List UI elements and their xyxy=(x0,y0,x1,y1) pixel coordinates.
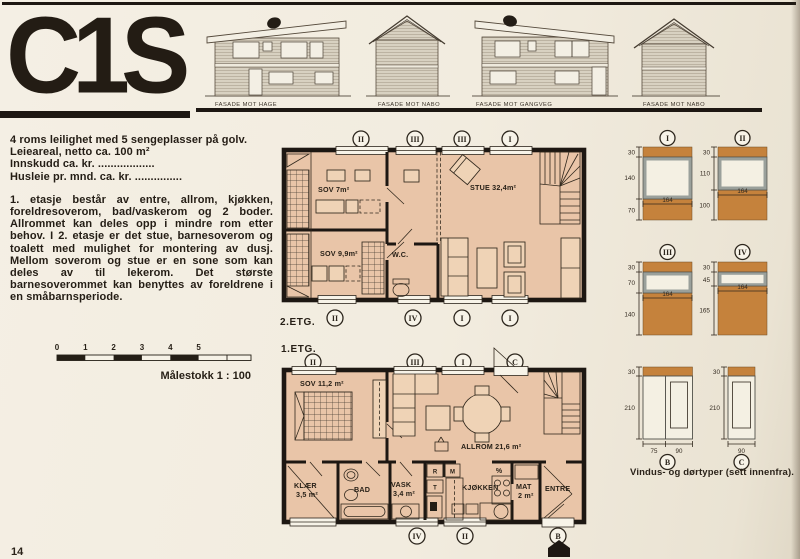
window xyxy=(315,72,333,84)
door-type-B: 30 210 75 90 B xyxy=(624,367,692,470)
plan-window xyxy=(444,296,482,304)
floor-band xyxy=(642,67,706,70)
scale-tick: 3 xyxy=(140,343,145,352)
dim-label: 110 xyxy=(700,171,711,178)
room-label: MAT xyxy=(516,482,532,491)
svg-text:B: B xyxy=(555,532,561,541)
door-type-C: 30 210 90 C xyxy=(709,367,755,470)
closet-label: R xyxy=(433,470,438,476)
scale-tick: 4 xyxy=(168,343,173,352)
svg-text:IV: IV xyxy=(409,314,418,323)
dim-label: 70 xyxy=(628,280,636,287)
room-label: KJØKKEN xyxy=(462,483,499,492)
appliance-door xyxy=(430,502,437,511)
dim-label: 30 xyxy=(703,265,711,272)
dim-label: 100 xyxy=(699,203,710,210)
dim-label: 164 xyxy=(737,188,748,195)
window xyxy=(233,42,259,58)
plan-window xyxy=(490,147,532,155)
dim-label: 30 xyxy=(703,150,711,157)
dim-label: 210 xyxy=(709,405,720,412)
opening-marker: III xyxy=(660,245,675,260)
window xyxy=(310,42,323,58)
scale-tick: 5 xyxy=(196,343,201,352)
coffee-table xyxy=(477,248,497,288)
floor-label: 2.ETG. xyxy=(280,317,315,328)
logo-underline xyxy=(0,111,190,118)
plan-window xyxy=(290,518,336,526)
scale-segment xyxy=(114,355,142,361)
plan-window xyxy=(442,367,484,375)
svg-text:III: III xyxy=(663,248,672,257)
plan-window xyxy=(396,147,436,155)
plan-marker: I xyxy=(454,310,470,326)
facade-hage-drawing: FASADE MOT HAGE xyxy=(203,6,353,109)
dim-label: 90 xyxy=(676,448,683,455)
svg-text:III: III xyxy=(457,135,466,144)
entrance-house-icon xyxy=(548,540,570,557)
facade-nabo-drawing: FASADE MOT NABO xyxy=(366,6,452,109)
window xyxy=(281,42,307,58)
dim-label: 45 xyxy=(703,277,711,284)
room-label: SOV 11,2 m² xyxy=(300,379,344,388)
chair xyxy=(475,433,489,442)
closet-hatched xyxy=(287,170,309,228)
dim-label: 30 xyxy=(628,369,636,376)
facade-label: FASADE MOT NABO xyxy=(378,102,440,108)
furniture-shelf xyxy=(355,170,370,181)
room-area: 3,4 m² xyxy=(393,489,415,498)
plan-marker: II xyxy=(327,310,343,326)
chair xyxy=(475,386,489,395)
window-type-II: II 30 110 100 164 xyxy=(699,131,767,221)
gable xyxy=(642,24,706,44)
dim-label: 164 xyxy=(662,197,673,204)
scanned-brochure-page: C1S FASADE MOT HAGE FASADE MOT NABO xyxy=(0,0,800,559)
room-label: STUE 32,4m² xyxy=(470,183,517,192)
scale-tick: 2 xyxy=(111,343,116,352)
window-type-IV: IV 30 45 165 164 xyxy=(699,245,767,336)
intro-line: Leieareal, netto ca. 100 m² xyxy=(10,146,273,158)
plan-marker: IV xyxy=(405,310,421,326)
room-label: VASK xyxy=(391,480,412,489)
plan-window xyxy=(292,367,336,375)
plan-marker: II xyxy=(457,528,473,544)
dim-label: 75 xyxy=(651,448,658,455)
bed xyxy=(329,266,344,281)
facade-label: FASADE MOT NABO xyxy=(643,102,705,108)
intro-line: Innskudd ca. kr. .................. xyxy=(10,158,273,170)
svg-text:I: I xyxy=(508,135,511,144)
svg-text:C: C xyxy=(739,458,745,467)
plan-window xyxy=(318,296,356,304)
closet-label: T xyxy=(433,486,437,492)
floor-band xyxy=(376,65,438,68)
scale-bar-outline xyxy=(57,355,251,361)
page-number: 14 xyxy=(11,546,23,558)
plan-marker: IV xyxy=(409,528,425,544)
dim-label: 140 xyxy=(624,312,635,319)
facade-nabo2-drawing: FASADE MOT NABO xyxy=(630,6,722,109)
floor-label: 1.ETG. xyxy=(281,344,316,355)
plan-marker: I xyxy=(502,131,518,147)
room-label: BAD xyxy=(354,485,370,494)
window-type-III: III 30 70 140 164 xyxy=(624,245,692,336)
dim-label: 30 xyxy=(628,150,636,157)
window xyxy=(263,42,272,51)
svg-text:I: I xyxy=(666,134,669,143)
floorplan-2etg: II III III I SOV 7m² xyxy=(278,126,600,338)
sofa xyxy=(441,238,468,296)
window xyxy=(555,71,579,84)
opening-marker: IV xyxy=(735,245,750,260)
opening-marker: II xyxy=(735,131,750,146)
floor-band xyxy=(482,64,608,68)
chair xyxy=(454,407,463,421)
gable xyxy=(376,21,438,40)
room-label: W.C. xyxy=(392,250,408,259)
description-paragraph: 1. etasje består av entre, allrom, kjøkk… xyxy=(10,194,273,304)
window xyxy=(490,71,516,84)
plan-window xyxy=(394,367,436,375)
double-bed xyxy=(304,392,352,440)
dim-label: 30 xyxy=(628,265,636,272)
dim-label: 30 xyxy=(713,369,721,376)
window-door-caption: Vindus- og dørtyper (sett innenfra). xyxy=(630,467,798,478)
house-type-logo: C1S xyxy=(6,2,181,110)
plan-window xyxy=(336,147,388,155)
scale-bar: 0 1 2 3 4 5 Målestokk 1 : 100 xyxy=(48,338,263,386)
svg-text:II: II xyxy=(358,135,364,144)
dining-table xyxy=(462,394,502,434)
furniture-shelf xyxy=(327,170,345,181)
svg-text:IV: IV xyxy=(738,248,747,257)
intro-line: 4 roms leilighet med 5 sengeplasser på g… xyxy=(10,134,273,146)
wardrobe-hatched xyxy=(362,242,384,294)
window-door-types-panel: I 30 140 70 164 II 30 110 100 164 xyxy=(622,128,800,473)
window xyxy=(495,41,520,57)
svg-text:II: II xyxy=(739,134,745,143)
facade-label: FASADE MOT GANGVEG xyxy=(476,102,552,108)
svg-text:III: III xyxy=(410,135,419,144)
floorplan-1etg: 1.ETG. II III I C xyxy=(278,336,600,559)
dim-label: 165 xyxy=(699,308,710,315)
plan-marker: III xyxy=(454,131,470,147)
dim-label: 70 xyxy=(628,208,636,215)
facade-gangveg-drawing: FASADE MOT GANGVEG xyxy=(470,6,620,109)
room-area: 2 m² xyxy=(518,491,534,500)
closet-label: M xyxy=(450,470,455,476)
dim-label: 164 xyxy=(662,291,673,298)
svg-text:III: III xyxy=(410,358,419,367)
chair xyxy=(501,407,510,421)
room-label: SOV 9,9m² xyxy=(320,249,358,258)
room-label: SOV 7m² xyxy=(318,185,350,194)
entry-door xyxy=(592,67,606,95)
description-block: 4 roms leilighet med 5 sengeplasser på g… xyxy=(10,134,273,314)
svg-text:II: II xyxy=(332,314,338,323)
svg-text:B: B xyxy=(665,458,671,467)
side-table xyxy=(426,406,450,430)
scale-segment xyxy=(170,355,198,361)
window xyxy=(269,72,293,84)
plan-window xyxy=(442,147,484,155)
svg-text:II: II xyxy=(462,532,468,541)
plan-marker: III xyxy=(407,131,423,147)
furniture-shelf xyxy=(404,170,419,182)
scale-caption: Målestokk 1 : 100 xyxy=(161,370,252,382)
dim-label: 210 xyxy=(624,405,635,412)
facade-label: FASADE MOT HAGE xyxy=(215,102,277,108)
svg-text:I: I xyxy=(508,314,511,323)
intro-line: Husleie pr. mnd. ca. kr. ............... xyxy=(10,171,273,183)
dim-label: 140 xyxy=(624,175,635,182)
floor-band xyxy=(215,64,339,68)
window xyxy=(528,41,536,51)
bed xyxy=(312,266,327,281)
room-label: ALLROM 21,6 m² xyxy=(461,442,522,451)
svg-text:II: II xyxy=(310,358,316,367)
nightstand xyxy=(346,200,358,213)
opening-marker: I xyxy=(660,131,675,146)
svg-text:I: I xyxy=(460,314,463,323)
vent-symbol: % xyxy=(496,468,503,475)
svg-text:I: I xyxy=(461,358,464,367)
plan-marker: I xyxy=(502,310,518,326)
plan-marker: II xyxy=(353,131,369,147)
bed xyxy=(316,200,344,213)
entry-door xyxy=(249,69,262,95)
scale-tick: 1 xyxy=(83,343,88,352)
scale-segment xyxy=(57,355,85,361)
window-type-I: I 30 140 70 164 xyxy=(624,131,692,221)
closet-hatched xyxy=(287,234,309,286)
scale-tick: 0 xyxy=(55,343,60,352)
svg-text:IV: IV xyxy=(413,532,422,541)
dim-label: 164 xyxy=(737,284,748,291)
room-area: 3,5 m² xyxy=(296,490,318,499)
